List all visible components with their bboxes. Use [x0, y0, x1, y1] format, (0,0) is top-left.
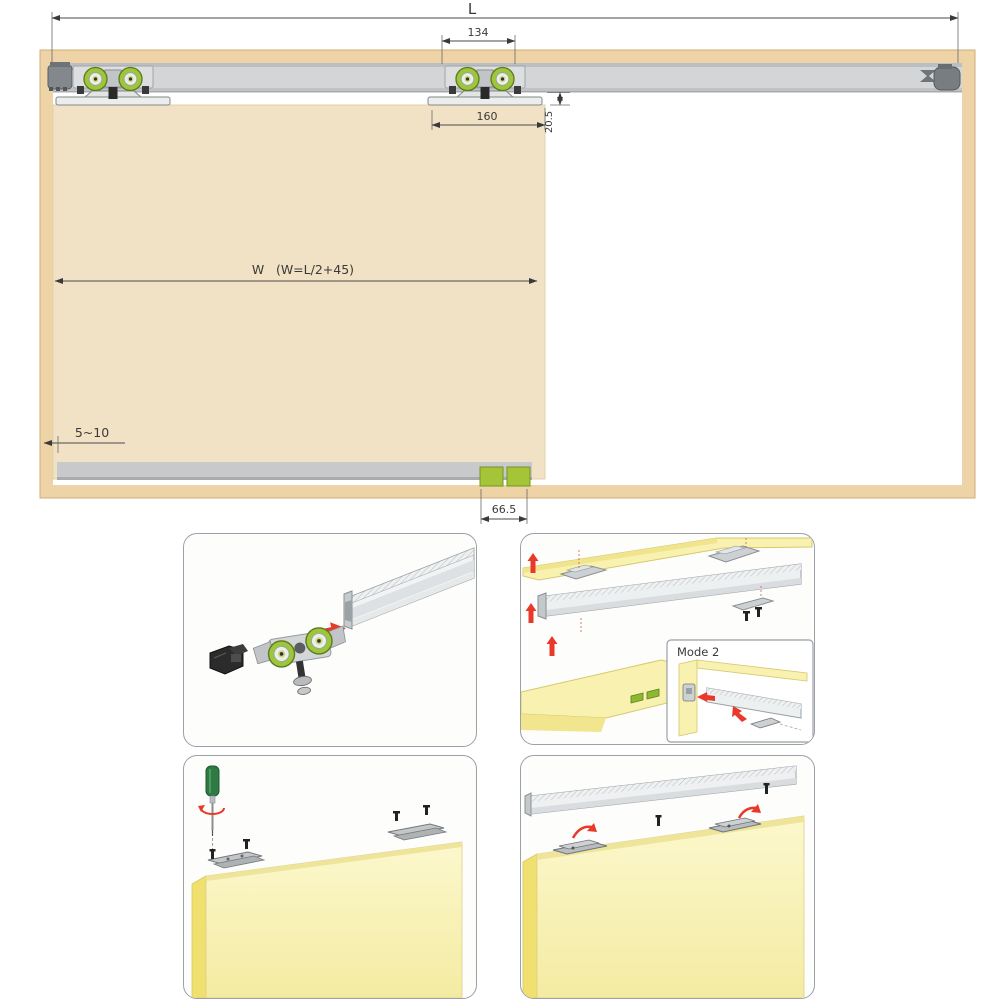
dim-L-label: L [468, 0, 477, 18]
up-arrow [526, 603, 537, 623]
dim-205-label: 20.5 [544, 111, 555, 133]
hanger-plate-right [388, 805, 446, 840]
step-4-illustration [521, 756, 814, 998]
hanger-plate-left [208, 839, 264, 868]
bracket-plate-screws [733, 598, 773, 621]
dim-W-formula: (W=L/2+45) [276, 262, 354, 277]
screwdriver [198, 766, 224, 859]
roller-carriage-left [56, 66, 170, 105]
stopper-clip [210, 644, 248, 674]
dim-160-label: 160 [477, 110, 498, 123]
front-elevation-diagram: L 134 160 20.5 W (W=L/2+45) [0, 0, 1000, 530]
step-2-panel: Mode 2 [520, 533, 815, 745]
mode2-label: Mode 2 [677, 645, 719, 659]
up-arrow [547, 636, 558, 656]
dim-134-label: 134 [468, 26, 489, 39]
sliding-door-installation-diagram: L 134 160 20.5 W (W=L/2+45) [0, 0, 1000, 1000]
dim-W-label: W [252, 262, 264, 277]
step-3-illustration [184, 756, 476, 998]
bottom-guide-rail [57, 462, 532, 480]
roller-carriage-middle [428, 66, 542, 105]
step-1-panel [183, 533, 477, 747]
step-2-illustration: Mode 2 [521, 534, 814, 744]
dim-510-label: 5~10 [75, 425, 109, 440]
step-3-panel [183, 755, 477, 999]
mode2-inset: Mode 2 [667, 640, 813, 742]
roller-carriage [252, 624, 353, 701]
step-4-panel [520, 755, 815, 999]
sliding-door-panel [53, 105, 545, 479]
step-1-illustration [184, 534, 476, 746]
door-panel [523, 816, 804, 998]
track-profile [344, 548, 474, 629]
dim-665-label: 66.5 [492, 503, 517, 516]
